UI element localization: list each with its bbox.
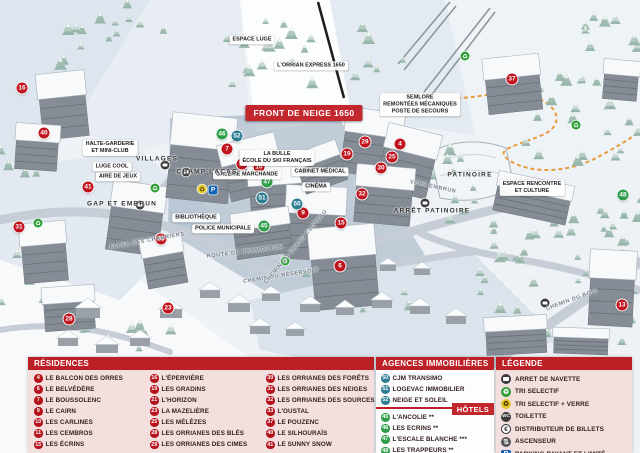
resort-map: 1640314133282371110199156294253032371346… (0, 0, 640, 453)
residence-item: 15LES ÉCRINS (34, 441, 150, 450)
residence-number: 28 (150, 429, 159, 438)
residence-label: LES ORRIANES DES SOURCES (278, 397, 375, 404)
map-marker-40: 40 (39, 128, 50, 139)
map-marker-32: 32 (357, 189, 368, 200)
residence-item: 23LA MAZELIÈRE (150, 407, 266, 416)
map-label: L'ORRIAN EXPRESS 1650 (274, 61, 348, 70)
parking-icon: P (501, 450, 511, 453)
map-label: LA BULLE ÉCOLE DU SKI FRANÇAIS (239, 150, 314, 166)
bus-icon (421, 199, 430, 208)
hotel-label: L'ESCALE BLANCHE *** (393, 436, 468, 443)
residence-item: 29LES ORRIANES DES CIMES (150, 441, 266, 450)
residence-item: 40LE SILHOURAÏS (266, 429, 374, 438)
residence-item: 6LE BELVÉDÈRE (34, 385, 150, 394)
map-label: ESPACE LUGE (229, 35, 274, 44)
residence-number: 21 (150, 396, 159, 405)
map-marker-31: 31 (14, 222, 25, 233)
residences-column: 16L'ÉPERVIÈRE19LES GRADINS21L'HORIZON23L… (150, 374, 266, 452)
hotel-item: 48LES TRAPPEURS ** (381, 447, 494, 453)
residence-label: L'ÉPERVIÈRE (162, 375, 204, 382)
residence-item: 30LES ORRIANES DES FORÊTS (266, 374, 374, 383)
residence-label: LES MÉLÈZES (162, 419, 207, 426)
residence-number: 7 (34, 396, 43, 405)
agency-label: NEIGE ET SOLEIL (393, 397, 448, 404)
map-label: HALTE-GARDERIE ET MINI-CLUB (83, 140, 138, 156)
map-label: PATINOIRE (447, 172, 492, 179)
residence-number: 15 (34, 441, 43, 450)
legend-label: TRI SELECTIF (515, 388, 559, 395)
recycle-icon: ♻ (461, 52, 470, 61)
map-label: BIBLIOTHÈQUE (172, 213, 220, 222)
map-marker-30: 30 (376, 163, 387, 174)
map-marker-7: 7 (222, 144, 233, 155)
residence-number: 16 (150, 374, 159, 383)
map-label: AIRE DE JEUX (96, 172, 140, 181)
residence-item: 37LE POUZENC (266, 418, 374, 427)
residence-label: L'OUSTAL (278, 408, 310, 415)
hotel-label: LES TRAPPEURS ** (393, 447, 454, 453)
map-marker-13: 13 (617, 300, 628, 311)
legend-label: ASCENSEUR (515, 438, 556, 445)
residence-number: 41 (266, 441, 275, 450)
map-label: LUGE COOL (93, 162, 132, 171)
agencies-header: AGENCES IMMOBILIÈRES (376, 357, 494, 370)
residence-item: 19LES GRADINS (150, 385, 266, 394)
legend-item: PPARKING PAYANT ET LIMITÉ (501, 450, 632, 453)
hotels-header: HÔTELS (452, 403, 494, 415)
legend-label: TRI SELECTIF + VERRE (515, 401, 589, 408)
parking-icon: P (209, 186, 218, 195)
residence-label: LES CEMBROS (46, 430, 93, 437)
map-label: CABINET MÉDICAL (291, 167, 348, 176)
residence-item: 31LES ORRIANES DES NEIGES (266, 385, 374, 394)
hotel-number: 47 (381, 435, 390, 444)
agency-label: LOGEVAC IMMOBILIER (393, 386, 465, 393)
map-marker-16: 16 (17, 83, 28, 94)
residence-label: LES ÉCRINS (46, 441, 85, 448)
residence-number: 11 (34, 429, 43, 438)
map-marker-25: 25 (387, 152, 398, 163)
residence-label: LE BALCON DES ORRES (46, 375, 123, 382)
legend-panel: LÉGENDE ARRET DE NAVETTE♻TRI SELECTIF♻TR… (496, 357, 632, 453)
residence-item: 21L'HORIZON (150, 396, 266, 405)
legend-item: ♻TRI SELECTIF (501, 387, 632, 397)
map-label: VILLAGES (136, 156, 178, 163)
residence-label: LES ORRIANES DES BLÉS (162, 430, 245, 437)
residence-item: 28LES ORRIANES DES BLÉS (150, 429, 266, 438)
residence-number: 6 (34, 385, 43, 394)
residence-label: L'HORIZON (162, 397, 197, 404)
residences-column: 30LES ORRIANES DES FORÊTS31LES ORRIANES … (266, 374, 374, 452)
residence-number: 40 (266, 429, 275, 438)
residence-number: 25 (150, 418, 159, 427)
legend-item: ⇅ASCENSEUR (501, 437, 632, 447)
residence-number: 31 (266, 385, 275, 394)
map-label: ESPACE RENCONTRE ET CULTURE (500, 180, 565, 196)
recycle-glass-icon: ♻ (501, 399, 511, 409)
euro-icon: € (501, 424, 511, 434)
map-label: CHEMIN DU BOIS (545, 288, 598, 312)
map-marker-28: 28 (64, 314, 75, 325)
map-marker-4: 4 (395, 139, 406, 150)
hotels-section: HÔTELS 45L'ANCOLIE **46LES ECRINS **47L'… (376, 407, 494, 453)
map-label: SEMLORE REMONTÉES MÉCANIQUES POSTE DE SE… (380, 93, 460, 116)
map-marker-29: 29 (360, 137, 371, 148)
residence-number: 33 (266, 407, 275, 416)
recycle-icon: ♻ (151, 184, 160, 193)
residence-label: LE POUZENC (278, 419, 320, 426)
residence-item: 32LES ORRIANES DES SOURCES (266, 396, 374, 405)
residence-label: LA MAZELIÈRE (162, 408, 210, 415)
hotels-list: 45L'ANCOLIE **46LES ECRINS **47L'ESCALE … (381, 413, 494, 453)
legend-label: DISTRIBUTEUR DE BILLETS (515, 426, 604, 433)
map-marker-41: 41 (83, 182, 94, 193)
residence-number: 29 (150, 441, 159, 450)
recycle-icon: ♻ (34, 219, 43, 228)
residence-number: 23 (150, 407, 159, 416)
hotel-label: LES ECRINS ** (393, 425, 439, 432)
legend-item: €DISTRIBUTEUR DE BILLETS (501, 424, 632, 434)
legend-label: ARRET DE NAVETTE (515, 376, 580, 383)
residence-label: LE SILHOURAÏS (278, 430, 328, 437)
wc-icon: WC (501, 412, 511, 422)
residence-label: LES GRADINS (162, 386, 206, 393)
recycle-icon: ♻ (501, 387, 511, 397)
map-marker-37: 37 (507, 74, 518, 85)
map-label: ALLÉE DES CHABRIERS (109, 231, 185, 250)
residences-column: 4LE BALCON DES ORRES6LE BELVÉDÈRE7LE BOU… (34, 374, 150, 452)
residence-number: 30 (266, 374, 275, 383)
map-label: VERS EMBRUN (409, 179, 456, 195)
residence-label: LE BOUSSOLENC (46, 397, 102, 404)
map-marker-50: 50 (292, 199, 303, 210)
residences-list: 4LE BALCON DES ORRES6LE BELVÉDÈRE7LE BOU… (28, 370, 374, 452)
residence-number: 19 (150, 385, 159, 394)
recycle-glass-icon: ♻ (198, 185, 207, 194)
map-marker-48: 48 (618, 190, 629, 201)
hotel-label: L'ANCOLIE ** (393, 414, 435, 421)
residence-number: 37 (266, 418, 275, 427)
residence-item: 41LE SUNNY SNOW (266, 441, 374, 450)
legend-header: LÉGENDE (496, 357, 632, 370)
map-marker-46: 46 (217, 129, 228, 140)
recycle-icon: ♻ (572, 121, 581, 130)
map-label: ARRÊT PATINOIRE (394, 208, 471, 215)
agency-number: 50 (381, 374, 390, 383)
residence-label: LES ORRIANES DES FORÊTS (278, 375, 370, 382)
map-marker-45: 45 (259, 221, 270, 232)
residence-label: LES ORRIANES DES NEIGES (278, 386, 368, 393)
residence-item: 11LES CEMBROS (34, 429, 150, 438)
residence-item: 25LES MÉLÈZES (150, 418, 266, 427)
map-label: CHEMIN DU RÉSERVOIR (243, 267, 319, 285)
agency-item: 50CJM TRANSIMO (381, 374, 494, 383)
residence-item: 7LE BOUSSOLENC (34, 396, 150, 405)
legend-item: ♻TRI SELECTIF + VERRE (501, 399, 632, 409)
agency-item: 51LOGEVAC IMMOBILIER (381, 385, 494, 394)
legend-item: WCTOILETTE (501, 412, 632, 422)
map-marker-9: 9 (298, 208, 309, 219)
hotel-item: 47L'ESCALE BLANCHE *** (381, 435, 494, 444)
map-marker-15: 15 (336, 218, 347, 229)
map-label: CINÉMA (302, 182, 330, 191)
residences-panel: RÉSIDENCES 4LE BALCON DES ORRES6LE BELVÉ… (28, 357, 374, 453)
bus-icon (501, 374, 511, 384)
residence-item: 4LE BALCON DES ORRES (34, 374, 150, 383)
agency-number: 52 (381, 396, 390, 405)
residences-header: RÉSIDENCES (28, 357, 374, 370)
hotel-number: 46 (381, 424, 390, 433)
agencies-panel: AGENCES IMMOBILIÈRES 50CJM TRANSIMO51LOG… (376, 357, 494, 453)
legend-item: ARRET DE NAVETTE (501, 374, 632, 384)
residence-label: LES ORRIANES DES CIMES (162, 441, 248, 448)
residence-item: 10LES CARLINES (34, 418, 150, 427)
map-label: CHAMP LACAS (176, 169, 237, 176)
map-marker-19: 19 (342, 149, 353, 160)
lift-icon: ⇅ (501, 437, 511, 447)
hotel-number: 48 (381, 447, 390, 453)
agencies-list: 50CJM TRANSIMO51LOGEVAC IMMOBILIER52NEIG… (376, 370, 494, 405)
legend-list: ARRET DE NAVETTE♻TRI SELECTIF♻TRI SELECT… (496, 370, 632, 453)
agency-label: CJM TRANSIMO (393, 375, 443, 382)
hotel-number: 45 (381, 413, 390, 422)
map-label: FRONT DE NEIGE 1650 (245, 105, 362, 121)
map-label: POLICE MUNICIPALE (192, 224, 254, 233)
agency-number: 51 (381, 385, 390, 394)
residence-number: 4 (34, 374, 43, 383)
map-label: ROUTE DE PRAMOUTON (207, 244, 284, 259)
map-marker-23: 23 (163, 303, 174, 314)
map-marker-6: 6 (335, 261, 346, 272)
residence-number: 10 (34, 418, 43, 427)
residence-label: LE CAIRN (46, 408, 77, 415)
hotel-item: 46LES ECRINS ** (381, 424, 494, 433)
map-marker-51: 51 (257, 193, 268, 204)
map-label: GAP ET EMBRUN (87, 201, 157, 208)
residence-label: LE SUNNY SNOW (278, 441, 332, 448)
legend-label: TOILETTE (515, 413, 547, 420)
residence-item: 9LE CAIRN (34, 407, 150, 416)
residence-number: 32 (266, 396, 275, 405)
residence-item: 33L'OUSTAL (266, 407, 374, 416)
residence-label: LE BELVÉDÈRE (46, 386, 95, 393)
residence-number: 9 (34, 407, 43, 416)
residence-label: LES CARLINES (46, 419, 93, 426)
residence-item: 16L'ÉPERVIÈRE (150, 374, 266, 383)
map-marker-52: 52 (232, 131, 243, 142)
